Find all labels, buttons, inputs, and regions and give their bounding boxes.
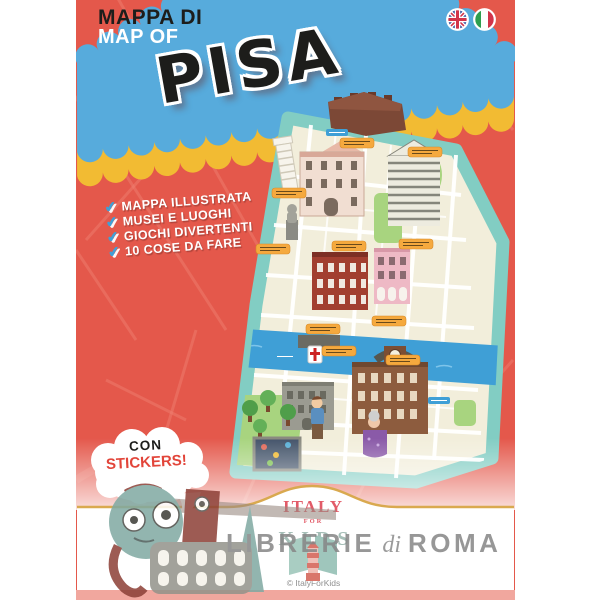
watermark-di: di (382, 532, 401, 559)
subtitle-italian: MAPPA DI (98, 8, 202, 28)
sticker-bubble: CON STICKERS! (89, 435, 203, 474)
uk-flag-icon (446, 8, 469, 31)
language-flags (446, 8, 496, 31)
watermark-text: LIBRERIE di ROMA (226, 528, 501, 559)
boy-character (311, 396, 324, 439)
italy-flag-icon (473, 8, 496, 31)
statue-illustration (286, 204, 298, 240)
watermark-librerie: LIBRERIE (226, 528, 375, 559)
watermark: LIBRERIE di ROMA (96, 478, 515, 600)
shield-emblem (308, 346, 322, 363)
red-palazzo-illustration (312, 252, 368, 310)
pink-arcade-illustration (374, 248, 410, 304)
watermark-roma: ROMA (408, 528, 501, 559)
checkmark-icon: ✔ (107, 242, 127, 262)
camera-body (182, 489, 220, 549)
book-cover: MAPPA DI MAP OF PISA (76, 0, 515, 600)
